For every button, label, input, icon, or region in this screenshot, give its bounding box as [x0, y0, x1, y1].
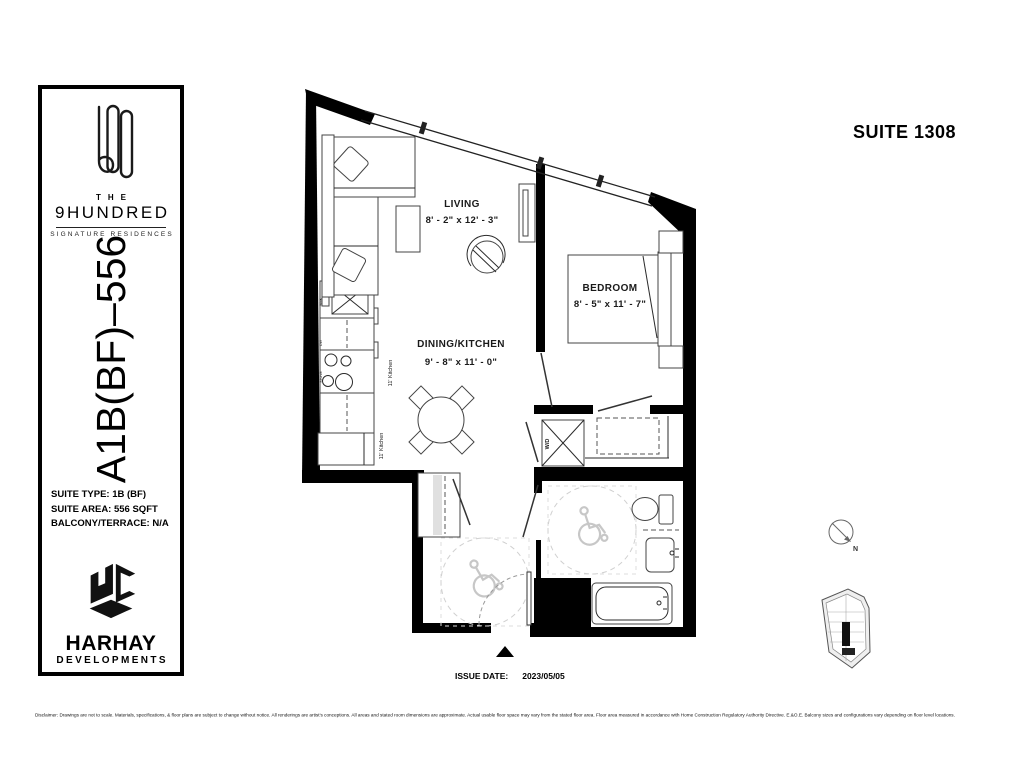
keyplan-suite-highlight	[842, 622, 850, 646]
turning-circle	[548, 486, 636, 574]
vanity-icon	[643, 530, 679, 572]
hc-logo	[80, 555, 142, 627]
bedroom-furniture	[568, 231, 683, 458]
toilet-icon	[632, 495, 673, 524]
nightstand-icon	[659, 231, 683, 253]
developer-sub: DEVELOPMENTS	[42, 655, 180, 666]
coffee-table-icon	[396, 206, 420, 252]
bedroom-label: BEDROOM	[582, 283, 637, 294]
living-label: LIVING	[444, 199, 480, 210]
wd-label: W/D	[545, 439, 551, 450]
bathtub-icon	[592, 583, 672, 624]
sofa-icon	[322, 135, 334, 297]
sink-label: SINK	[319, 297, 323, 306]
north-arrow-icon: N	[815, 507, 873, 559]
entry-door	[527, 572, 531, 625]
entry-marker-icon	[496, 646, 514, 657]
issue-date-label: ISSUE DATE:	[455, 671, 508, 681]
nightstand-icon	[659, 346, 683, 368]
floorplan-page: THE 9HUNDRED SIGNATURE RESIDENCES A1B(BF…	[0, 0, 1024, 768]
dining-set	[409, 386, 474, 454]
laundry-closet	[526, 420, 584, 466]
fridge-icon	[318, 433, 374, 465]
bedroom-dims: 8' - 5" x 11' - 7"	[574, 299, 646, 310]
issue-date-value: 2023/05/05	[522, 671, 565, 681]
brand-sidebar: THE 9HUNDRED SIGNATURE RESIDENCES A1B(BF…	[38, 85, 184, 676]
closet-outline	[597, 418, 659, 454]
suite-model-code: A1B(BF)–556	[86, 209, 136, 509]
turning-circle	[441, 538, 529, 626]
suite-type: SUITE TYPE: 1B (BF)	[51, 488, 169, 503]
brand-the: THE	[42, 193, 180, 202]
dining-table-icon	[418, 397, 464, 443]
suite-specs: SUITE TYPE: 1B (BF) SUITE AREA: 556 SQFT…	[51, 488, 169, 532]
wheelchair-icon	[461, 554, 503, 601]
developer-name: HARHAY	[42, 632, 180, 656]
disclaimer-text: Disclaimer: Drawings are not to scale. M…	[35, 713, 990, 718]
dw-label: DW	[319, 339, 323, 345]
closet-door	[598, 396, 652, 411]
north-label: N	[853, 546, 858, 553]
suite-area: SUITE AREA: 556 SQFT	[51, 503, 169, 518]
page-title: SUITE 1308	[853, 122, 956, 143]
bathroom-door	[523, 485, 538, 537]
stove-label: STOVE	[319, 371, 323, 383]
kitchen-note: 11' Kitchen	[379, 433, 385, 460]
dining-kitchen-dims: 9' - 8" x 11' - 0"	[425, 357, 497, 368]
issue-date-row: ISSUE DATE: 2023/05/05	[455, 671, 565, 681]
kitchen-note: 11' Kitchen	[388, 360, 394, 387]
doors	[541, 353, 552, 407]
laundry-door	[526, 422, 538, 462]
dining-kitchen-label: DINING/KITCHEN	[417, 339, 505, 350]
keyplan	[814, 586, 880, 674]
suite-balcony: BALCONY/TERRACE: N/A	[51, 517, 169, 532]
wheelchair-icon	[571, 503, 608, 548]
nine-hundred-logo	[92, 101, 138, 185]
floor-plan: LIVING 8' - 2" x 12' - 3" BEDROOM 8' - 5…	[295, 80, 715, 670]
living-dims: 8' - 2" x 12' - 3"	[426, 215, 499, 226]
bedroom-door	[541, 353, 552, 407]
